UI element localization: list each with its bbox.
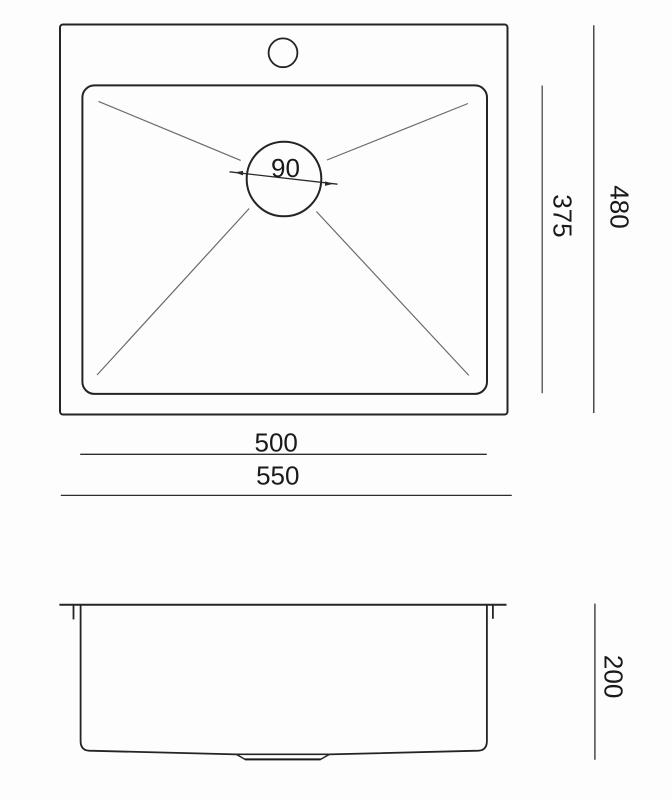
svg-text:200: 200 (599, 655, 629, 698)
svg-text:375: 375 (547, 194, 577, 237)
svg-text:90: 90 (271, 153, 300, 183)
svg-text:550: 550 (256, 461, 299, 491)
svg-text:500: 500 (255, 427, 298, 457)
svg-text:480: 480 (605, 185, 635, 228)
